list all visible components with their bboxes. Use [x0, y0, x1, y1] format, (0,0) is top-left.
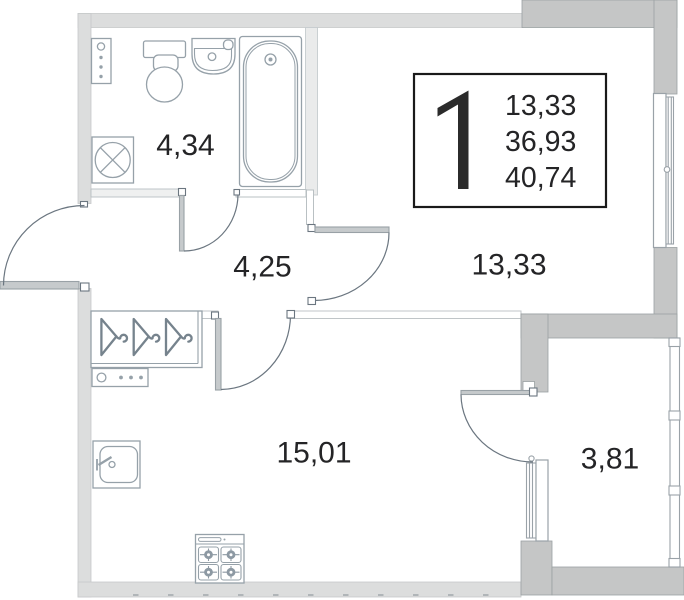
svg-text:4,25: 4,25	[233, 251, 291, 284]
svg-text:4,34: 4,34	[156, 129, 214, 162]
svg-text:40,74: 40,74	[505, 162, 576, 194]
svg-text:3,81: 3,81	[581, 443, 639, 476]
svg-text:15,01: 15,01	[276, 437, 351, 470]
svg-text:36,93: 36,93	[505, 126, 576, 158]
svg-text:13,33: 13,33	[471, 249, 546, 282]
svg-text:13,33: 13,33	[505, 90, 576, 122]
